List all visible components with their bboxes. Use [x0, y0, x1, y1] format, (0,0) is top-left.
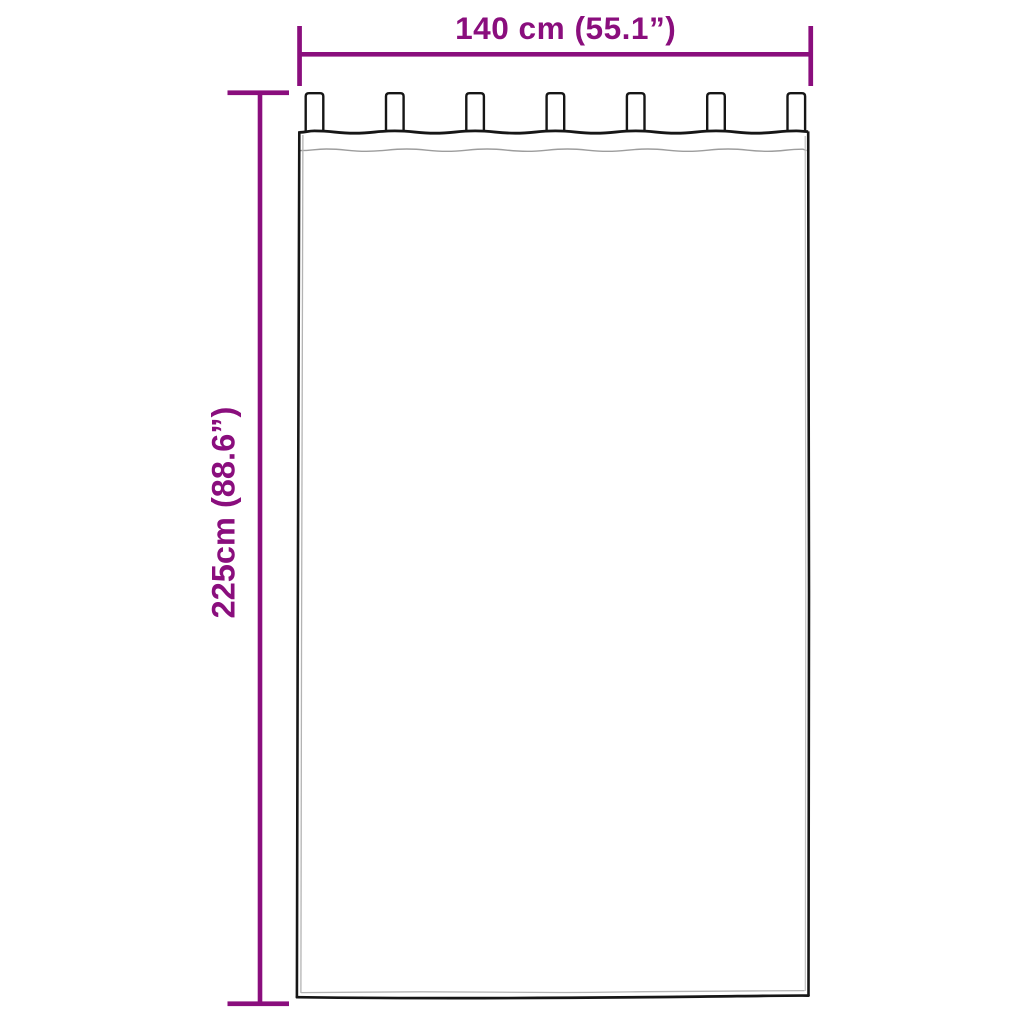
- svg-text:225cm (88.6”): 225cm (88.6”): [205, 407, 242, 619]
- svg-text:140 cm (55.1”): 140 cm (55.1”): [455, 10, 676, 46]
